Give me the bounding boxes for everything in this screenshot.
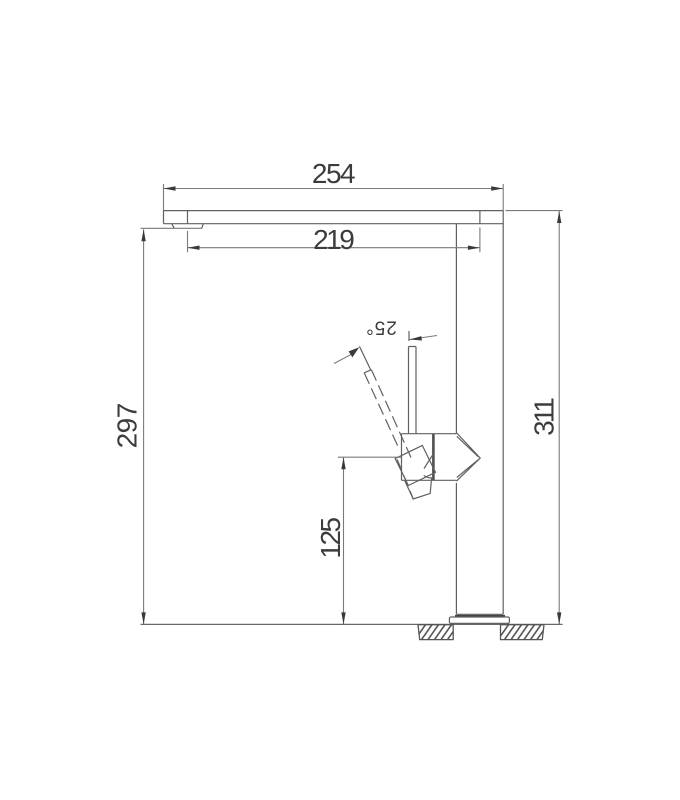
svg-text:25°: 25°: [365, 317, 397, 338]
svg-text:125: 125: [315, 517, 346, 558]
svg-text:297: 297: [112, 403, 143, 448]
svg-text:254: 254: [312, 158, 355, 189]
svg-text:311: 311: [529, 398, 560, 436]
svg-text:219: 219: [313, 224, 354, 255]
